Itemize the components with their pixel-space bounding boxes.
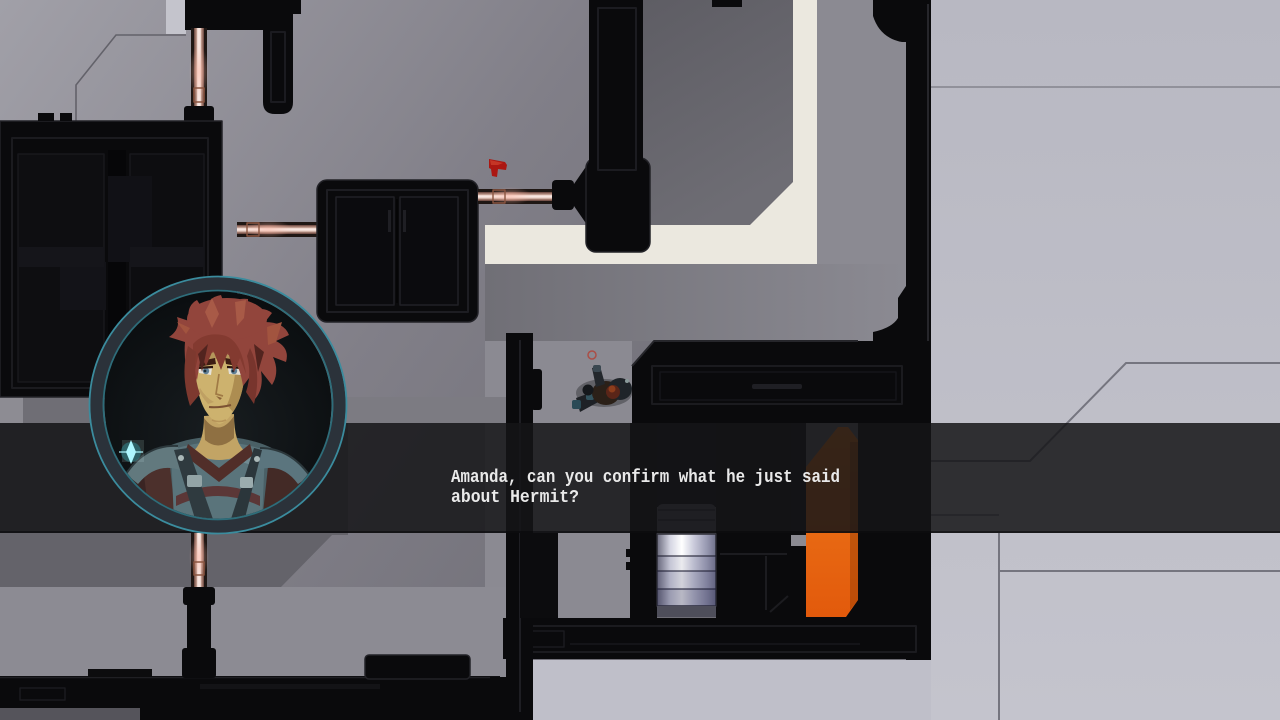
svg-text:Amanda, can you confirm what h: Amanda, can you confirm what he just sai… <box>451 468 840 488</box>
svg-text:about Hermit?: about Hermit? <box>451 488 579 508</box>
